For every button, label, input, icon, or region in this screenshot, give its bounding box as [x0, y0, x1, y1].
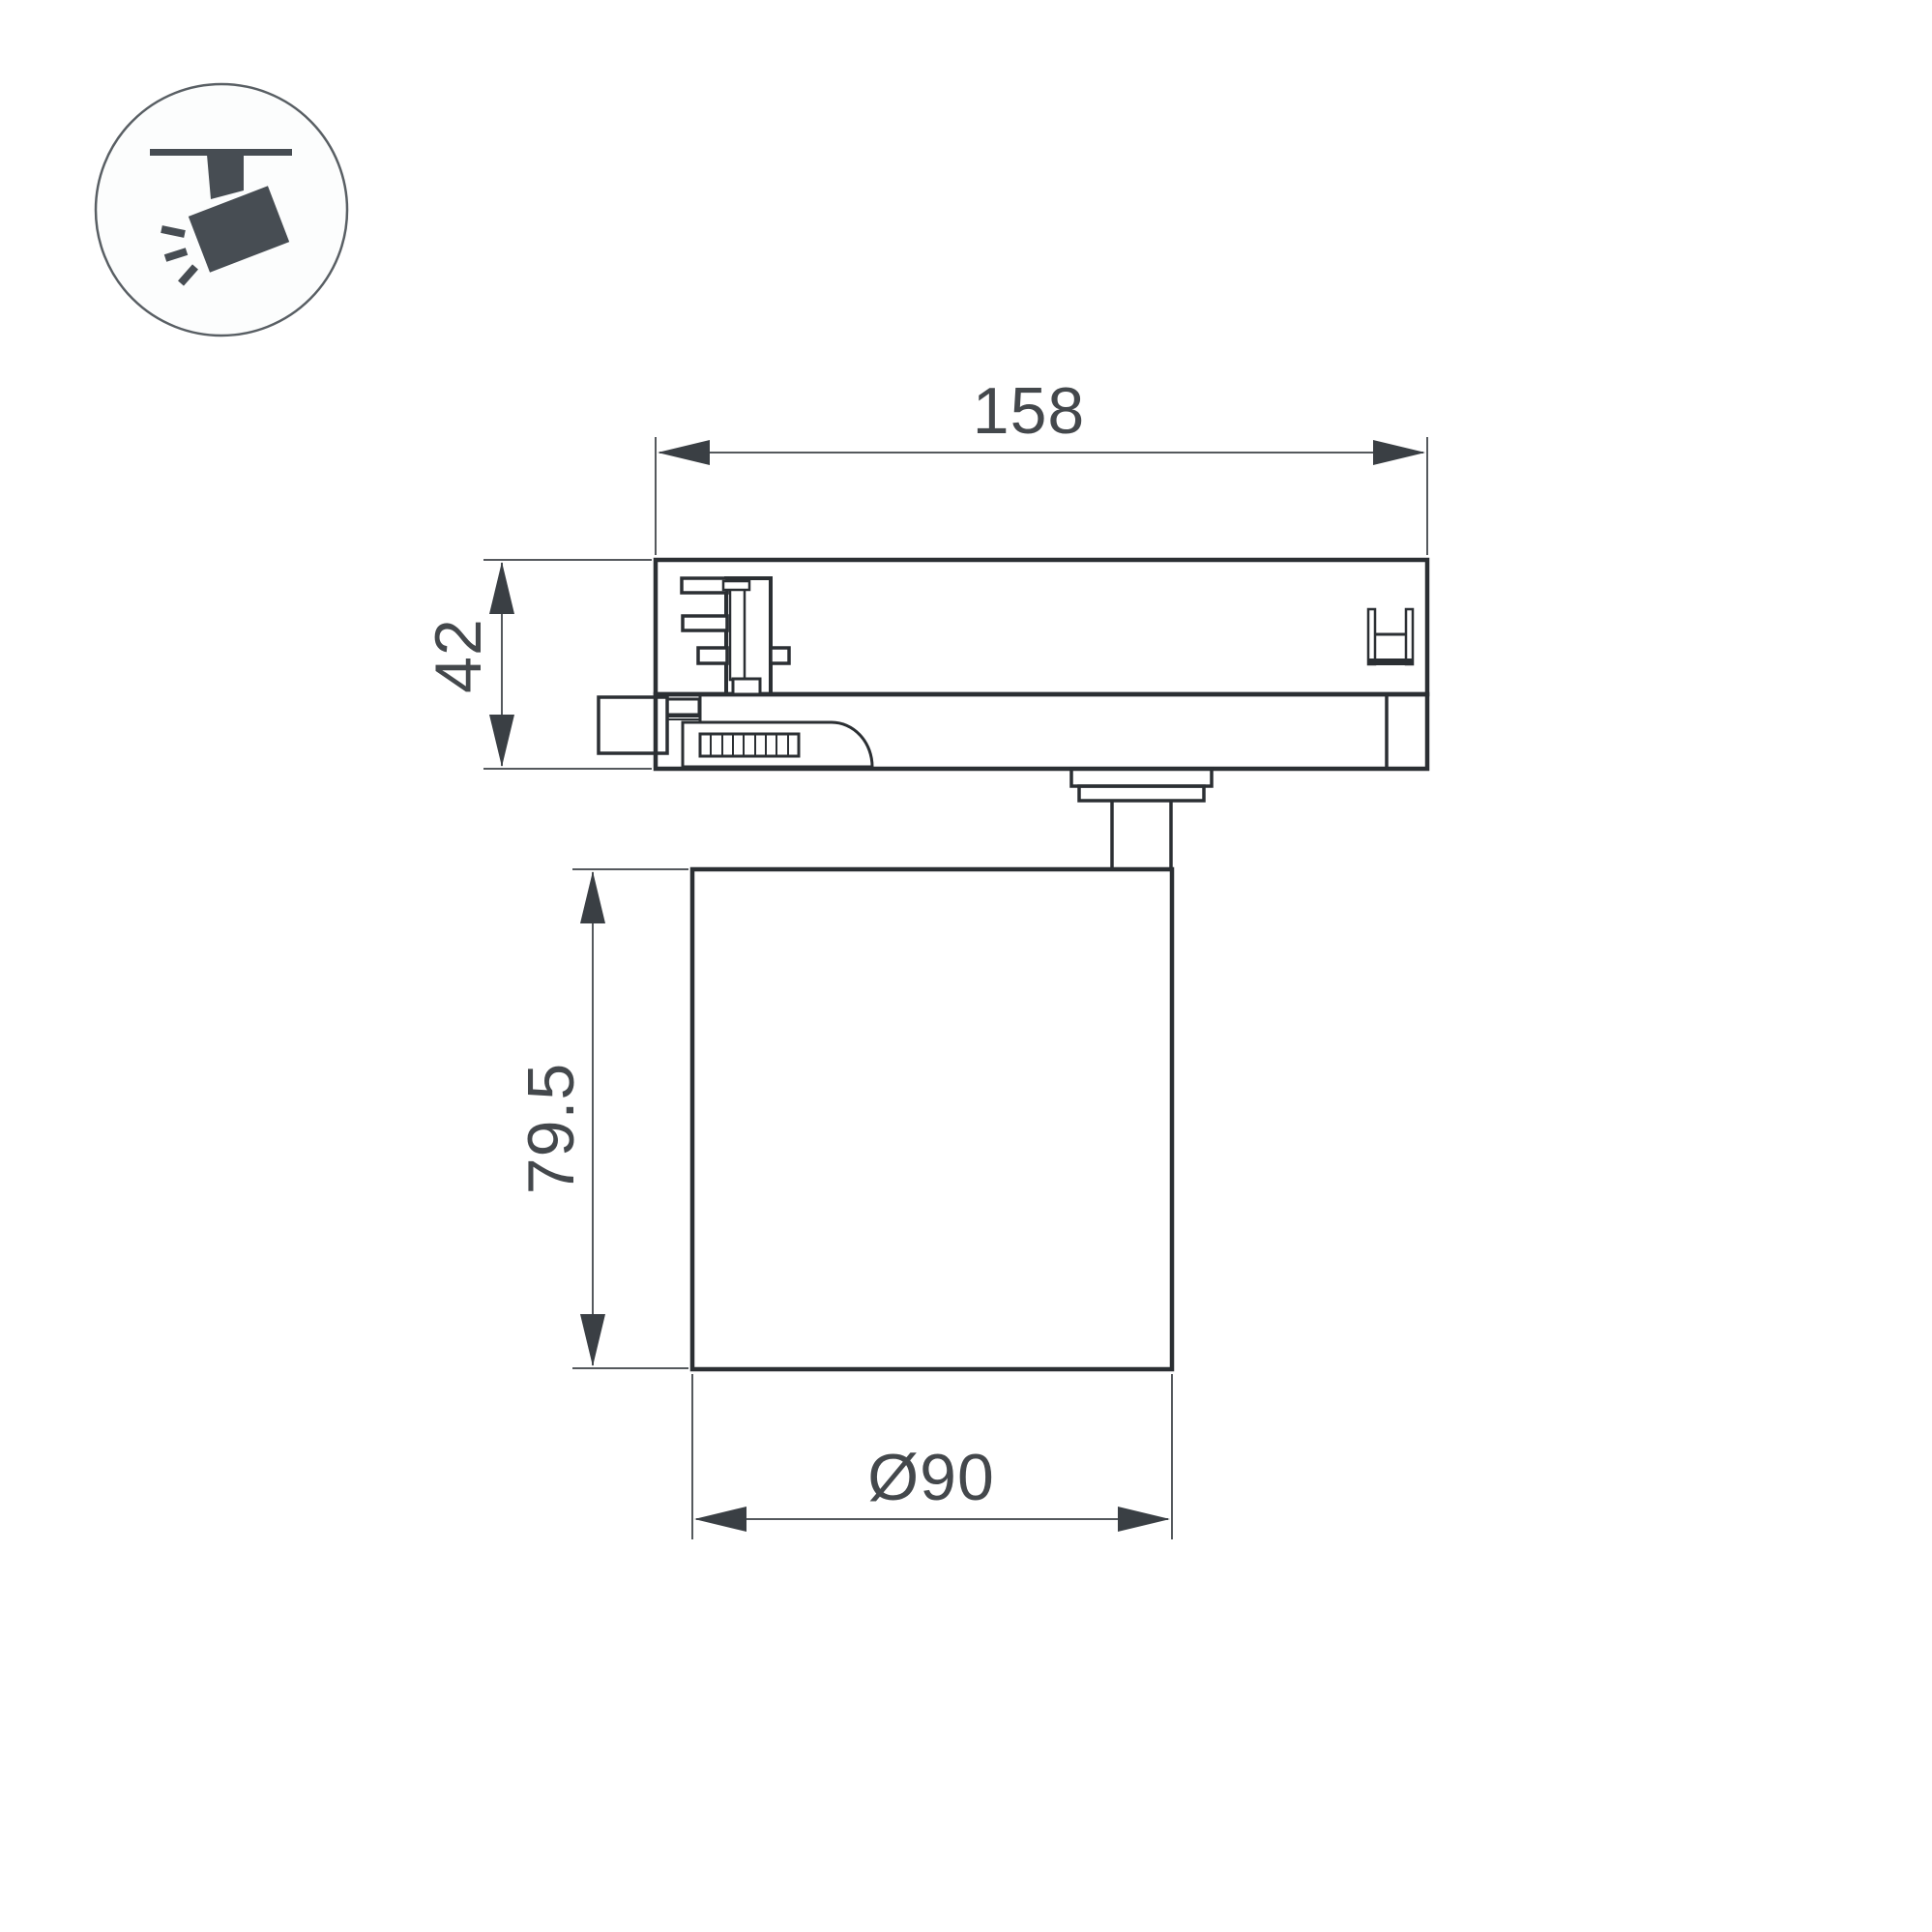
dim-label-track-length: 158: [973, 374, 1085, 448]
adapter-clamp-bracket: [1368, 609, 1413, 665]
adapter-latch-assembly: [682, 578, 789, 694]
grip-ridge-lines: [711, 734, 788, 756]
latch-contact-prong: [682, 578, 727, 593]
latch-pin-foot: [733, 679, 760, 694]
dim-body-height: 79.5: [514, 869, 688, 1368]
technical-drawing-page: 158 42: [0, 0, 1932, 1932]
latch-pin: [730, 588, 745, 680]
arrowhead-down: [489, 715, 514, 767]
dim-label-body-diameter: Ø90: [867, 1441, 995, 1514]
dim-label-adapter-height: 42: [422, 618, 495, 693]
dim-body-diameter: Ø90: [692, 1374, 1172, 1539]
arrowhead-up: [580, 871, 605, 923]
latch-contact-prong: [683, 616, 727, 630]
arrowhead-left: [658, 440, 710, 465]
track-spotlight-icon: [96, 84, 347, 336]
arrowhead-right: [1118, 1507, 1170, 1532]
clamp-left-leg: [1368, 609, 1375, 664]
lamp-body: [692, 869, 1172, 1369]
dim-label-body-height: 79.5: [514, 1063, 588, 1194]
adapter-lower-detail: [599, 694, 872, 767]
latch-pin-cap: [723, 581, 749, 590]
arrowhead-down: [580, 1314, 605, 1366]
icon-track-bar: [150, 149, 292, 156]
technical-drawing-canvas: 158 42: [0, 0, 1932, 1932]
clamp-bottom-bar: [1368, 659, 1413, 665]
swivel-joint: [1071, 769, 1212, 869]
joint-flange-lower: [1079, 786, 1204, 801]
track-adapter: [599, 560, 1427, 769]
dim-track-length: 158: [656, 374, 1427, 555]
adapter-grip-ridges: [700, 734, 799, 756]
dim-adapter-height: 42: [422, 560, 652, 769]
clamp-right-leg: [1406, 609, 1413, 664]
icon-light-ray: [161, 229, 185, 234]
adapter-small-slot: [667, 699, 699, 715]
latch-right-tab: [771, 648, 789, 663]
latch-frame: [726, 578, 771, 694]
joint-flange-upper: [1071, 769, 1212, 786]
arrowhead-left: [694, 1507, 746, 1532]
arrowhead-right: [1373, 440, 1425, 465]
arrowhead-up: [489, 562, 514, 614]
latch-contact-prong: [698, 648, 727, 663]
